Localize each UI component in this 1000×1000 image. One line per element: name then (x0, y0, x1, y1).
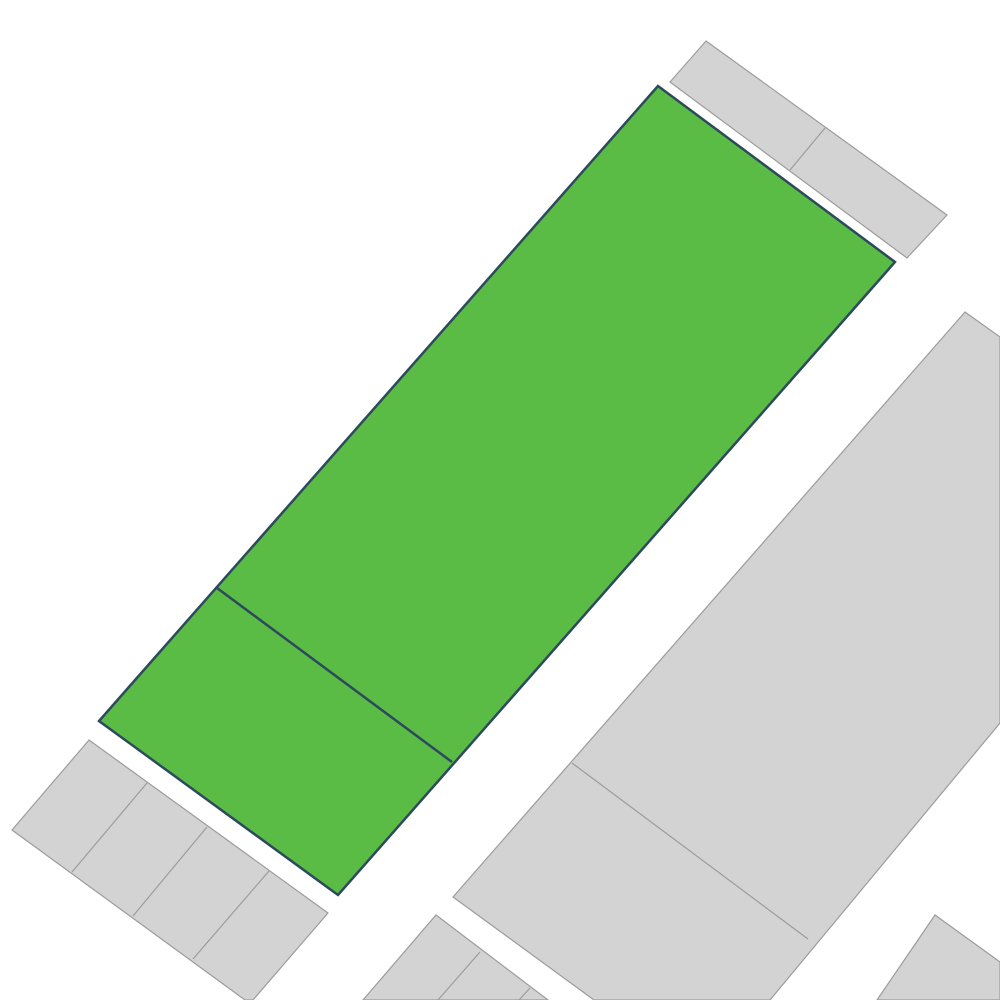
parcel-map[interactable] (0, 0, 1000, 1000)
parcel-layer (12, 41, 1000, 1000)
parcel-bottom-right-corner-parcel[interactable] (877, 915, 1000, 1000)
map-viewport[interactable] (0, 0, 1000, 1000)
